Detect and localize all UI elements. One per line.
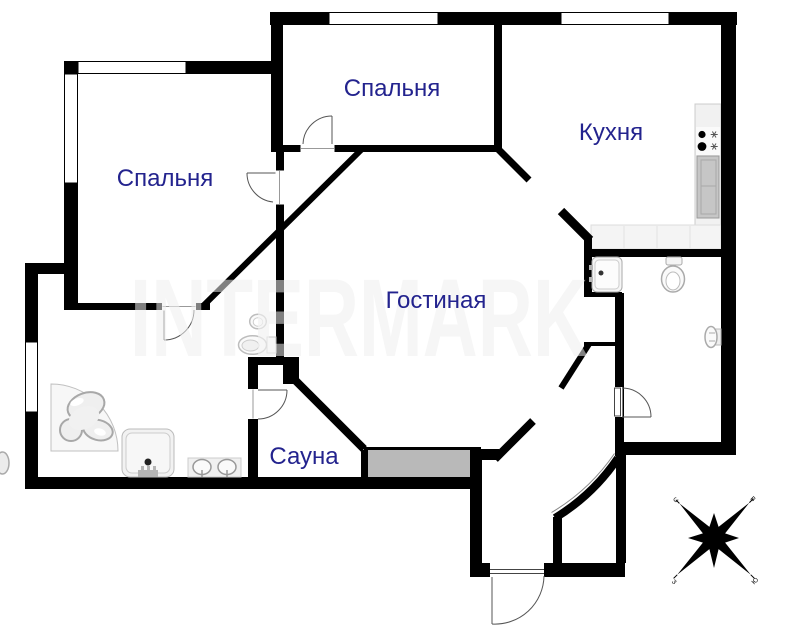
svg-text:Спальня: Спальня — [344, 75, 440, 102]
svg-text:Кухня: Кухня — [579, 119, 643, 146]
svg-text:Сауна: Сауна — [269, 443, 339, 470]
svg-text:Ю: Ю — [751, 576, 761, 586]
svg-text:Гостиная: Гостиная — [386, 287, 487, 314]
svg-text:З: З — [670, 578, 678, 586]
svg-text:Спальня: Спальня — [117, 165, 213, 192]
